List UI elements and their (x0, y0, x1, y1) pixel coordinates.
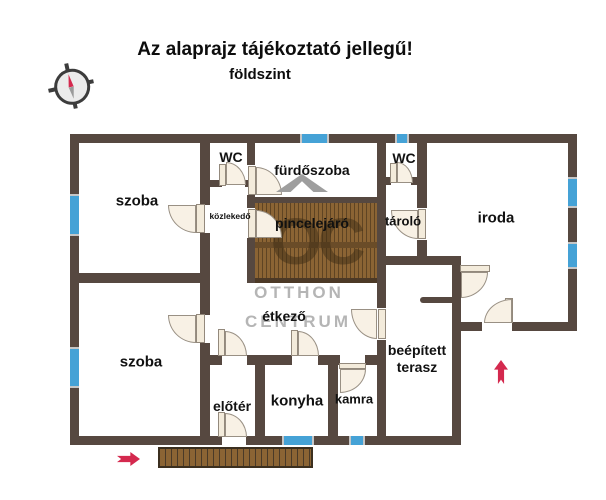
compass-icon (46, 61, 96, 111)
door-arc-eloter-top (225, 331, 247, 356)
wall-terasz-railing (420, 297, 455, 303)
wall-eloter-konyha (255, 365, 265, 436)
wall-konyha-top (318, 355, 340, 365)
wall-furdo-left-3 (247, 238, 255, 283)
room-label-iroda: iroda (478, 210, 515, 227)
watermark-line1: OTTHON (254, 283, 344, 303)
room-label-wc-right: WC (392, 150, 415, 166)
page-subtitle: földszint (229, 66, 291, 83)
room-label-tarolo: tároló (385, 214, 421, 229)
wall-kamra-top (365, 355, 377, 365)
wall-inner-left-3 (200, 343, 210, 436)
door-slab-terasz (378, 309, 386, 339)
room-label-szoba-bottom: szoba (120, 354, 163, 371)
room-label-szoba-top: szoba (116, 193, 159, 210)
wall-tarolo-right-upper (417, 134, 427, 208)
window-iroda-1 (568, 177, 577, 208)
door-slab-eloter-top (218, 329, 225, 356)
door-arc-szoba-bottom (168, 315, 196, 343)
door-arc-szoba-top (168, 205, 196, 233)
wall-furdo-left-2 (247, 195, 255, 208)
room-label-kamra: kamra (335, 392, 373, 407)
room-label-konyha: konyha (271, 393, 324, 410)
room-label-kozlekedo: közlekedő (209, 211, 250, 221)
window-furdoszoba (300, 134, 329, 143)
entrance-deck (158, 447, 313, 468)
door-slab-furdoszoba (248, 166, 256, 195)
window-konyha (282, 436, 314, 445)
wall-inner-left-1 (200, 134, 210, 205)
room-label-eloter: előtér (213, 398, 251, 414)
door-arc-entrance (225, 413, 247, 437)
room-label-terasz: beépített terasz (388, 342, 446, 376)
window-iroda-2 (568, 242, 577, 269)
wall-szoba-divider (70, 273, 210, 283)
wall-eloter-top-b (247, 355, 292, 365)
door-slab-konyha (291, 330, 298, 356)
wall-eloter-top-a (210, 355, 222, 365)
red-arrow-right-icon (117, 452, 140, 466)
wall-mid-vertical-lower (377, 340, 386, 436)
window-szoba-top (70, 194, 79, 236)
door-slab-wc-right (390, 163, 397, 183)
door-arc-terasz (351, 309, 377, 339)
door-arc-iroda-bottom (484, 299, 512, 323)
room-label-pincelejaro: pincelejáró (275, 215, 349, 231)
wall-terasz-top (378, 256, 458, 265)
wall-outer-right (568, 134, 577, 331)
door-slab-entrance (218, 412, 225, 437)
window-szoba-bottom (70, 347, 79, 388)
wall-outer-left (70, 134, 79, 445)
window-kamra (349, 436, 365, 445)
room-label-furdoszoba: fürdőszoba (274, 162, 349, 178)
room-label-etkezo: étkező (262, 308, 306, 324)
wall-furdo-left-1 (247, 134, 255, 165)
door-arc-konyha (298, 331, 319, 356)
room-label-terasz-line2: terasz (388, 359, 446, 376)
window-wc-right (395, 134, 409, 143)
wall-iroda-bottom-b (512, 322, 577, 331)
door-slab-wc-left (219, 164, 226, 186)
wall-terasz-right (452, 256, 461, 445)
red-arrow-up-icon (494, 360, 508, 384)
door-slab-szoba-bottom (196, 314, 205, 343)
room-label-terasz-line1: beépített (388, 342, 446, 359)
room-label-wc-left: WC (219, 149, 242, 165)
door-arc-iroda-terasz (461, 272, 488, 298)
door-arc-kamra (340, 369, 366, 393)
door-slab-szoba-top (196, 204, 205, 233)
door-slab-iroda-terasz (460, 265, 490, 272)
wall-outer-bottom-left (70, 436, 222, 445)
door-arc-wc-left (226, 162, 246, 185)
page-title: Az alaprajz tájékoztató jellegű! (137, 39, 413, 61)
floorplan-page: Az alaprajz tájékoztató jellegű! földszi… (0, 0, 606, 500)
